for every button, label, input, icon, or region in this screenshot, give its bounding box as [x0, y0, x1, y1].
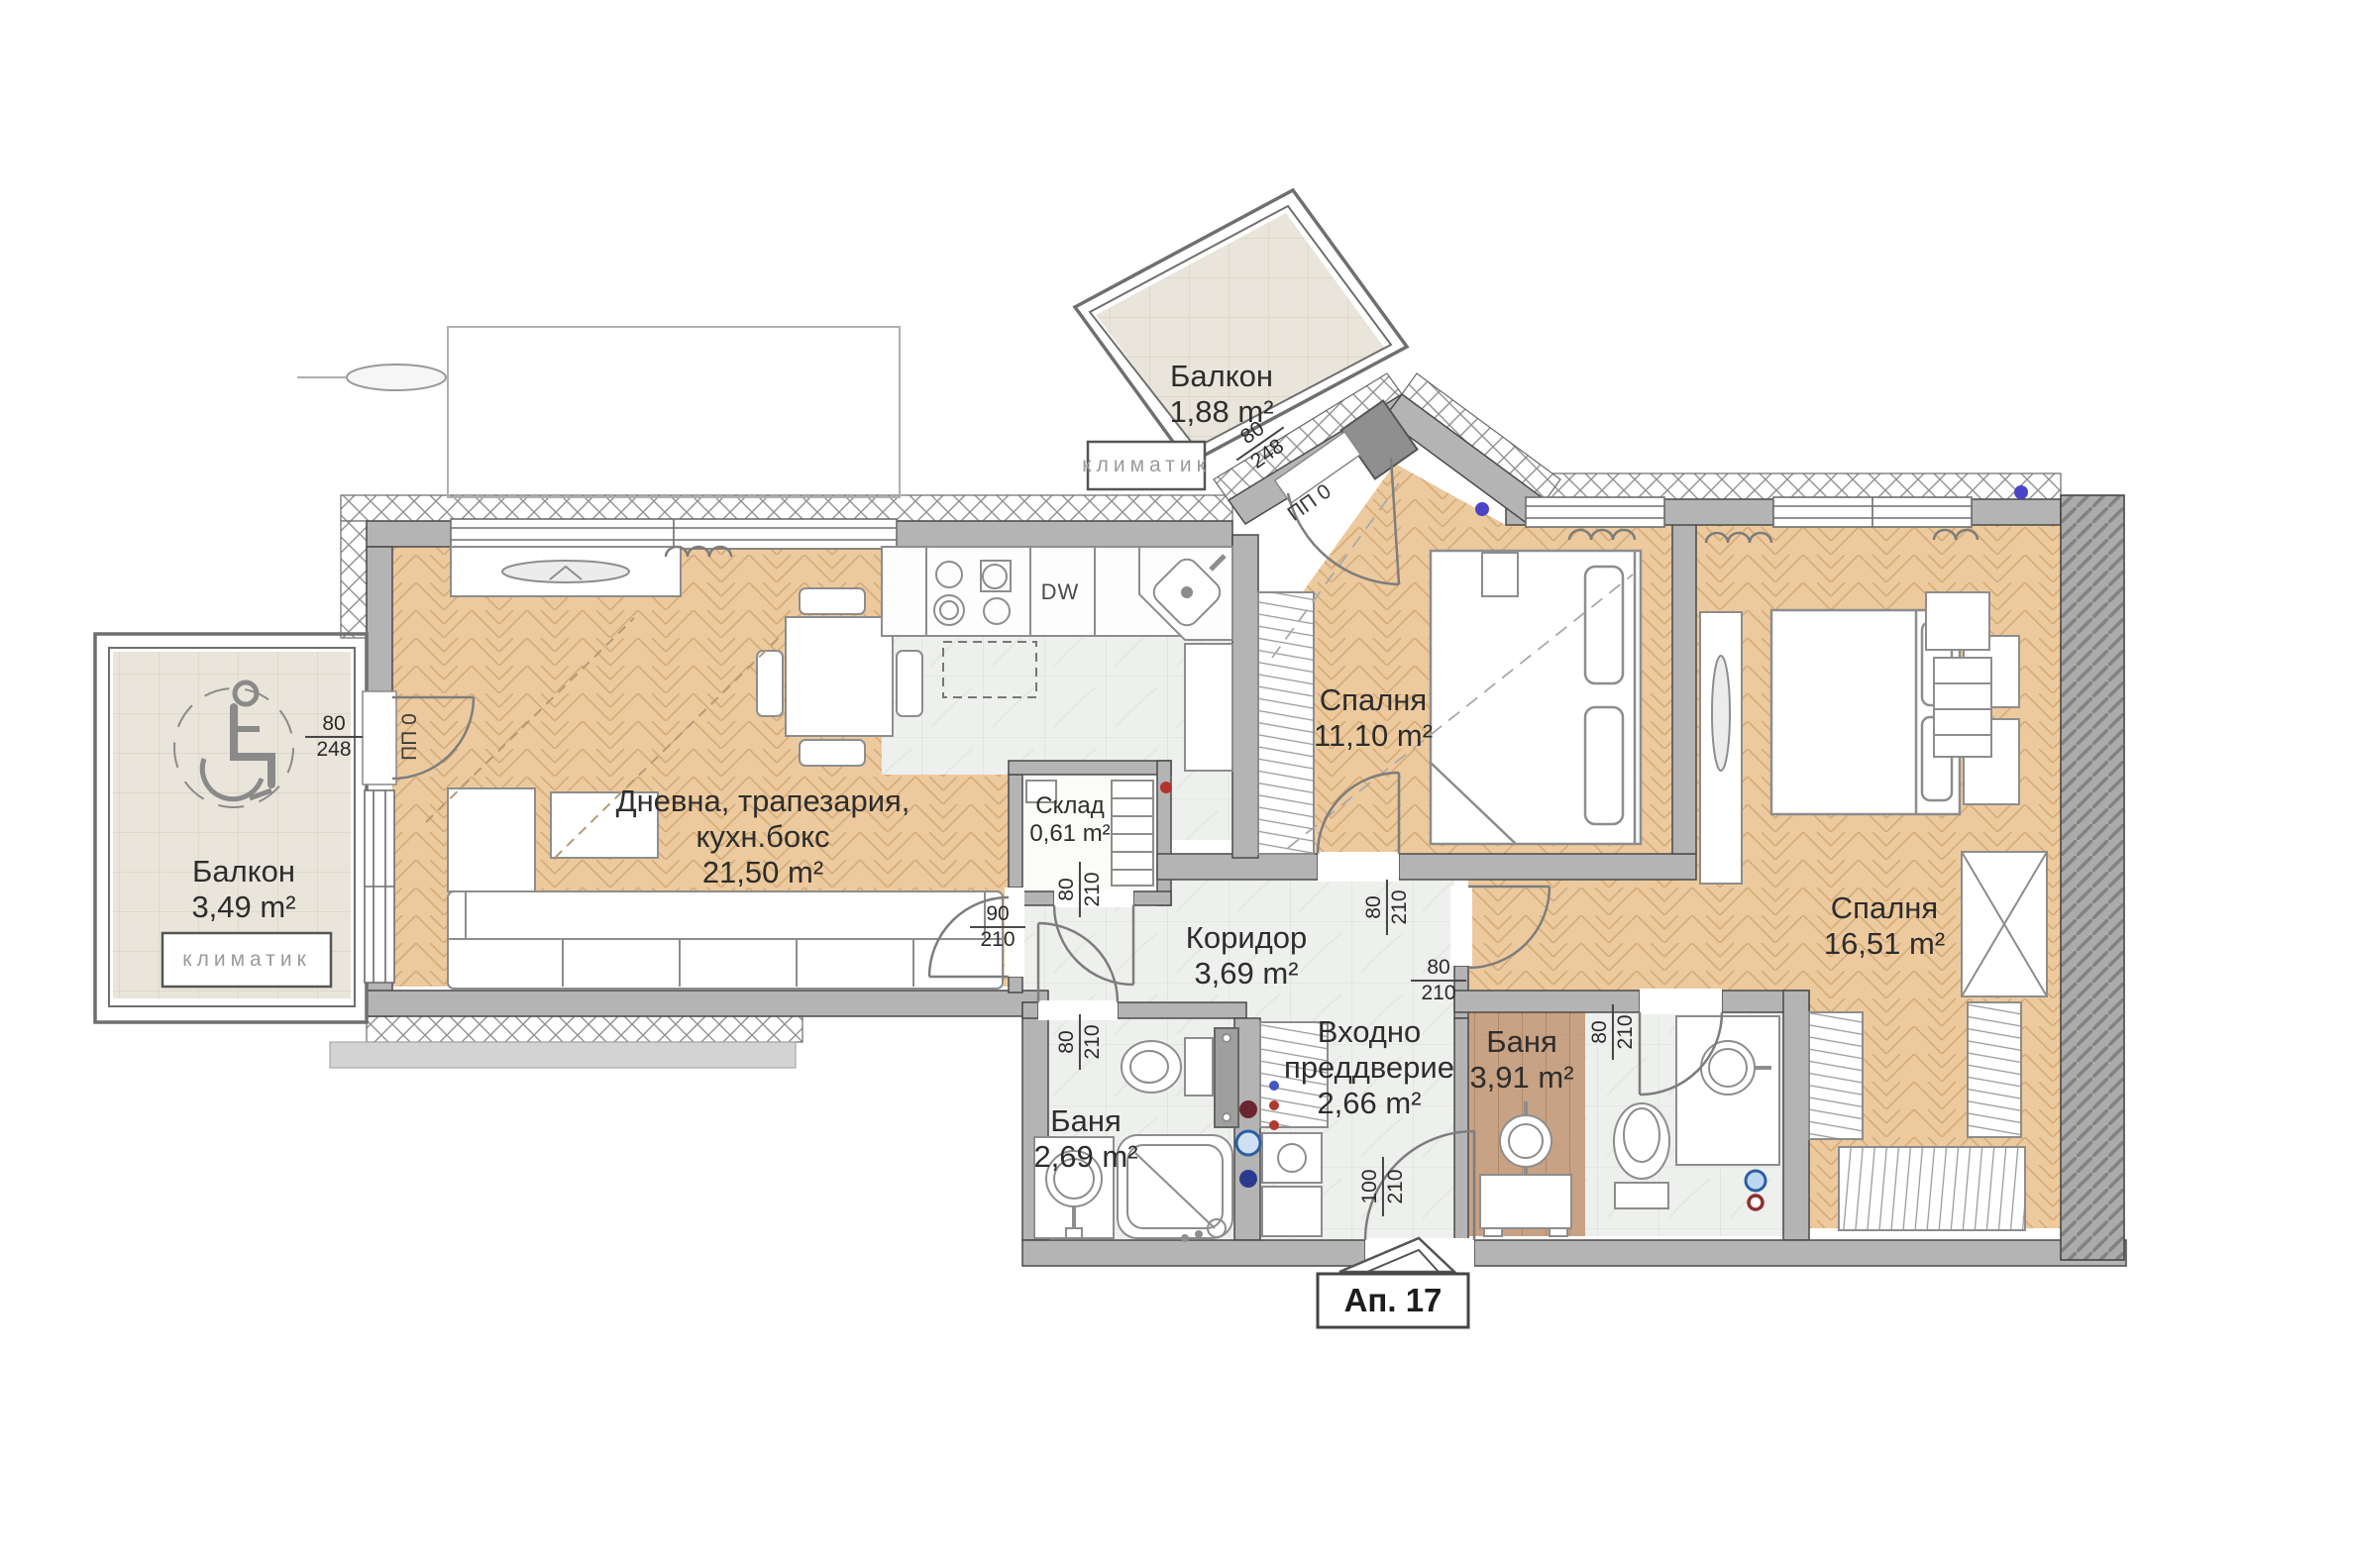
shaft-box-bedroom1 [1482, 553, 1518, 596]
wardrobe-bedroom1 [1258, 592, 1314, 854]
window-bedroom2-top [1773, 497, 1972, 527]
toilet-icon-bath1 [1122, 1038, 1213, 1096]
room-label-entry: Входнопреддверие2,66 m² [1284, 1014, 1454, 1121]
room-label-bath1: Баня2,69 m² [1033, 1103, 1137, 1175]
toilet-icon-bath2 [1614, 1103, 1669, 1208]
marker-blue-1 [1475, 502, 1489, 516]
door-dim-balcony-left: 80248 [305, 713, 363, 761]
door-dim-bedroom2: 80210 [1411, 957, 1466, 1004]
window-living-left [365, 790, 394, 983]
closet-strip-left [1809, 1012, 1863, 1139]
door-dim-storage: 80210 [1056, 862, 1104, 917]
room-label-bedroom1: Спалня11,10 m² [1314, 682, 1433, 754]
towel-rail-icon [1215, 1028, 1238, 1127]
door-dim-entrance: 100210 [1359, 1157, 1407, 1216]
door-code-balcony-left: ПП 0 [398, 713, 422, 761]
door-dim-bath2: 80210 [1589, 1004, 1637, 1060]
sink-icon-bath2 [1676, 1016, 1779, 1165]
floorplan-drawing [0, 0, 2353, 1568]
klimatik-label-top: климатик [1082, 454, 1211, 477]
shaft-boxes-bedroom2 [1926, 592, 1991, 757]
door-dim-bedroom1: 80210 [1363, 880, 1411, 935]
dishwasher-label: DW [1041, 579, 1080, 605]
closet-strip-right [1968, 1002, 2021, 1137]
wardrobe-x-bedroom2 [1962, 852, 2047, 996]
apartment-label: Ап. 17 [1344, 1282, 1443, 1319]
bed-bedroom1 [1431, 551, 1641, 844]
window-bedroom1-top [1526, 497, 1664, 527]
media-unit [451, 547, 681, 596]
floorplan-page: Балкон1,88 m² Балкон3,49 m² Дневна, трап… [0, 0, 2353, 1568]
room-label-living: Дневна, трапезария,кухн.бокс21,50 m² [616, 784, 910, 890]
closet-strip-bottom [1839, 1147, 2025, 1230]
room-label-balcony-left: Балкон3,49 m² [191, 854, 295, 925]
coffee-table-1 [448, 788, 535, 891]
party-wall-hatched [2061, 495, 2124, 1260]
klimatik-label-left: климатик [182, 948, 311, 972]
dresser-tv-bedroom2 [1700, 612, 1742, 884]
marker-blue-2 [2014, 485, 2028, 499]
window-exterior-sill [297, 327, 900, 497]
room-label-corridor: Коридор3,69 m² [1186, 920, 1307, 992]
sofa [448, 891, 1003, 989]
window-living-top [451, 519, 897, 549]
kitchen-tall-cabinet [1185, 644, 1232, 771]
room-label-storage: Склад0,61 m² [1029, 792, 1110, 848]
door-dim-bath1: 80210 [1056, 1014, 1104, 1070]
door-dim-living: 90210 [970, 903, 1025, 951]
room-label-bath2: Баня3,91 m² [1469, 1024, 1573, 1096]
room-label-bedroom2: Спалня16,51 m² [1824, 890, 1945, 962]
balcony-left-slab [330, 1042, 796, 1068]
utility-point-red [1160, 782, 1172, 793]
